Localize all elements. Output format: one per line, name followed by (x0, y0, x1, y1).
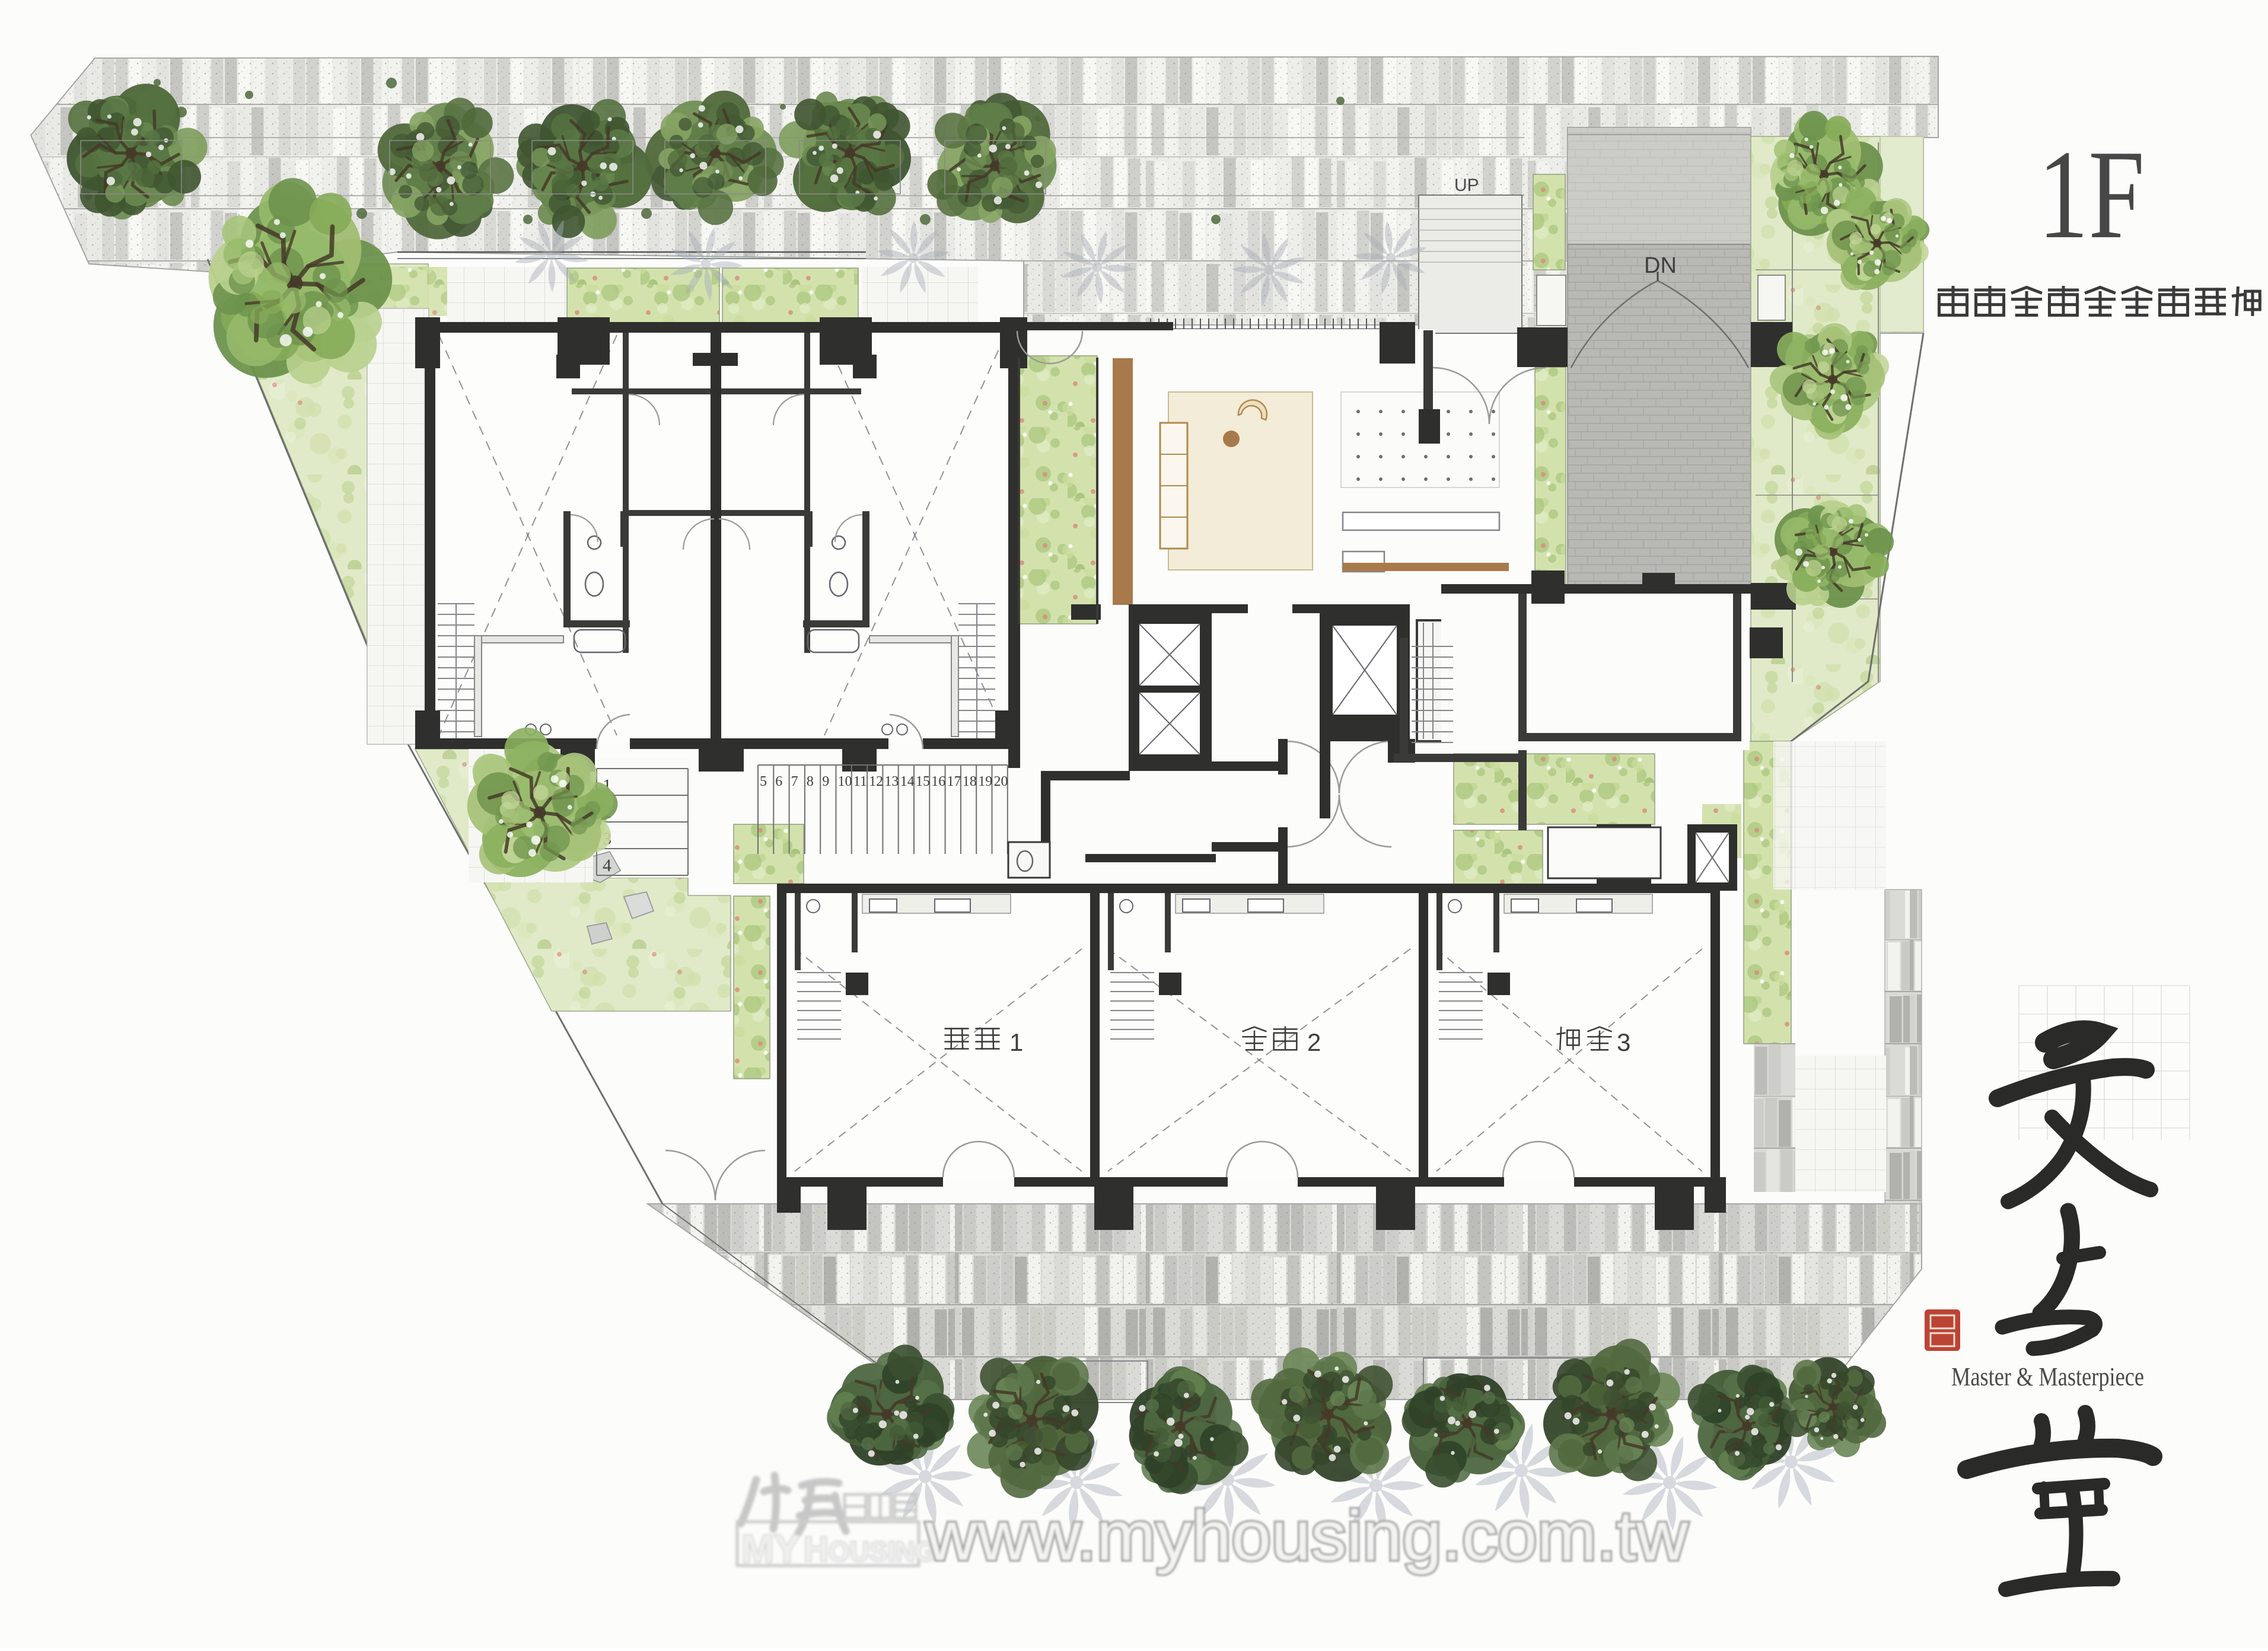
svg-text:13: 13 (884, 774, 899, 789)
svg-text:14: 14 (900, 774, 915, 789)
svg-text:10: 10 (838, 774, 852, 789)
svg-text:17: 17 (947, 774, 961, 789)
svg-text:6: 6 (775, 774, 782, 789)
svg-text:DN: DN (1644, 253, 1677, 278)
svg-text:12: 12 (869, 774, 883, 789)
svg-text:8: 8 (807, 774, 814, 789)
svg-text:Master & Masterpiece: Master & Masterpiece (1951, 1362, 2144, 1391)
svg-text:19: 19 (978, 774, 992, 789)
svg-text:UP: UP (1454, 176, 1479, 195)
svg-text:15: 15 (916, 774, 930, 789)
svg-text:HOUSING: HOUSING (804, 1530, 936, 1569)
svg-text:www.myhousing.com.tw: www.myhousing.com.tw (925, 1497, 1689, 1575)
svg-text:2: 2 (1307, 1028, 1321, 1056)
svg-text:20: 20 (994, 774, 1008, 789)
svg-text:MY: MY (741, 1526, 800, 1570)
svg-text:5: 5 (760, 774, 767, 789)
svg-text:3: 3 (1617, 1028, 1630, 1056)
svg-text:7: 7 (791, 774, 798, 789)
svg-text:1: 1 (1009, 1028, 1023, 1056)
svg-text:11: 11 (853, 774, 867, 789)
svg-text:9: 9 (822, 774, 829, 789)
svg-text:1F: 1F (2038, 123, 2145, 265)
svg-text:16: 16 (931, 774, 945, 789)
svg-text:4: 4 (603, 856, 611, 875)
svg-text:18: 18 (963, 774, 977, 789)
